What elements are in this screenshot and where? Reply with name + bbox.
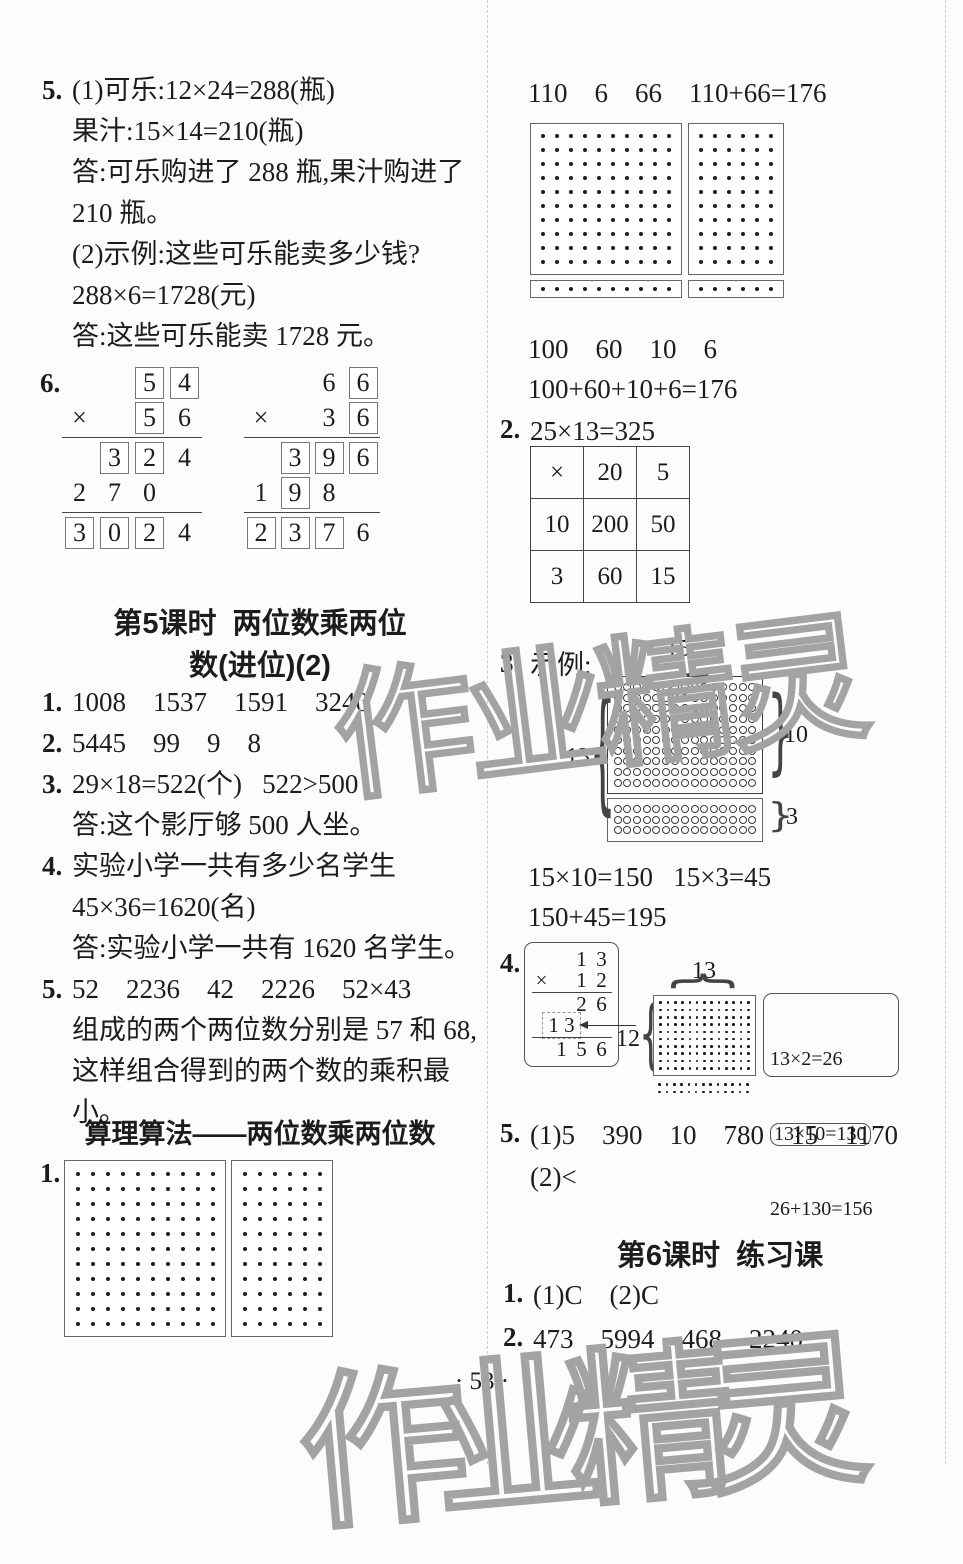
dot bbox=[740, 1038, 743, 1041]
dot bbox=[667, 1067, 670, 1070]
digit: 8 bbox=[323, 478, 336, 508]
dot bbox=[699, 260, 703, 264]
digit: 2 bbox=[596, 968, 607, 993]
circle-counter bbox=[681, 747, 689, 755]
line-text: 45×36=1620(名) bbox=[72, 892, 255, 922]
circle-counter bbox=[691, 826, 699, 834]
dot bbox=[703, 1038, 706, 1041]
text-line: 45×36=1620(名) bbox=[42, 887, 484, 928]
dot bbox=[659, 1031, 662, 1034]
dot bbox=[181, 1262, 185, 1266]
circle-counter bbox=[700, 736, 708, 744]
dot bbox=[769, 134, 773, 138]
dot bbox=[727, 176, 731, 180]
problem-number: 2. bbox=[500, 414, 520, 445]
circle-counter bbox=[719, 826, 727, 834]
text-line: 答:这些可乐能卖 1728 元。 bbox=[42, 316, 484, 357]
dot bbox=[583, 232, 587, 236]
dot bbox=[710, 1038, 713, 1041]
dot bbox=[273, 1232, 277, 1236]
dot bbox=[639, 232, 643, 236]
dot bbox=[695, 1083, 698, 1086]
circle-counter bbox=[633, 779, 641, 787]
digit: 6 bbox=[596, 992, 607, 1017]
dot bbox=[740, 1045, 743, 1048]
rule-line bbox=[62, 437, 202, 438]
dot bbox=[732, 1023, 735, 1026]
dot bbox=[243, 1202, 247, 1206]
circle-counter bbox=[633, 683, 641, 691]
circle-counter bbox=[652, 747, 660, 755]
dot bbox=[681, 1052, 684, 1055]
circle-counter bbox=[710, 726, 718, 734]
dot bbox=[625, 232, 629, 236]
dot-grid-10x10 bbox=[530, 123, 682, 275]
problem-number: 3. bbox=[42, 764, 62, 805]
circle-counter bbox=[710, 704, 718, 712]
digit-cell: 9 bbox=[278, 475, 312, 510]
dot bbox=[611, 148, 615, 152]
digit-cell: × bbox=[62, 400, 97, 435]
count-label-12: 12 bbox=[616, 1026, 640, 1053]
dot bbox=[288, 1322, 292, 1326]
dot bbox=[713, 204, 717, 208]
circle-counter bbox=[739, 704, 747, 712]
circle-counter bbox=[691, 805, 699, 813]
text-line: 210 瓶。 bbox=[42, 193, 484, 234]
digit: 0 bbox=[143, 478, 156, 508]
dot bbox=[718, 1060, 721, 1063]
line-text: 答:实验小学一共有 1620 名学生。 bbox=[72, 933, 471, 963]
circle-counter bbox=[652, 736, 660, 744]
circle-counter bbox=[623, 704, 631, 712]
dot bbox=[211, 1307, 215, 1311]
digit-cell: 2 bbox=[132, 440, 167, 475]
circle-counter bbox=[710, 826, 718, 834]
dot bbox=[273, 1247, 277, 1251]
digit-cell: 1 bbox=[572, 970, 592, 991]
dot bbox=[681, 1031, 684, 1034]
dot bbox=[713, 260, 717, 264]
dot bbox=[769, 148, 773, 152]
dot bbox=[569, 260, 573, 264]
boxed-digit: 2 bbox=[247, 517, 276, 549]
circle-counter bbox=[633, 768, 641, 776]
dot bbox=[769, 246, 773, 250]
dot bbox=[258, 1187, 262, 1191]
dot bbox=[699, 204, 703, 208]
dot-grid-6x10 bbox=[688, 123, 784, 275]
circle-counter bbox=[652, 715, 660, 723]
dot bbox=[689, 1038, 692, 1041]
dot bbox=[696, 1023, 699, 1026]
circle-counter bbox=[739, 736, 747, 744]
dot bbox=[196, 1232, 200, 1236]
dot bbox=[741, 218, 745, 222]
dot bbox=[303, 1307, 307, 1311]
dot bbox=[583, 134, 587, 138]
circle-counter bbox=[681, 715, 689, 723]
dot bbox=[718, 1023, 721, 1026]
problem-number: 1. bbox=[503, 1278, 523, 1309]
circle-counter bbox=[662, 736, 670, 744]
problem-number: 4. bbox=[42, 846, 62, 887]
dot bbox=[569, 148, 573, 152]
dot bbox=[673, 1083, 676, 1086]
dot bbox=[166, 1172, 170, 1176]
circle-counter bbox=[652, 805, 660, 813]
table-cell: 15 bbox=[637, 551, 690, 603]
dot bbox=[258, 1232, 262, 1236]
circle-counter bbox=[643, 816, 651, 824]
circle-counter bbox=[652, 726, 660, 734]
dot bbox=[710, 1060, 713, 1063]
circle-counter bbox=[710, 779, 718, 787]
text-line: 果汁:15×14=210(瓶) bbox=[42, 111, 484, 152]
dot bbox=[243, 1277, 247, 1281]
circle-counter bbox=[719, 694, 727, 702]
workbook-answer-page: { "page": { "number_label": "· 53 ·", "p… bbox=[0, 0, 963, 1464]
dot bbox=[625, 246, 629, 250]
circle-counter bbox=[662, 704, 670, 712]
dot bbox=[689, 1016, 692, 1019]
circle-grid-15x10 bbox=[607, 676, 763, 794]
dot bbox=[696, 1016, 699, 1019]
dot bbox=[740, 1001, 743, 1004]
dot bbox=[181, 1202, 185, 1206]
dot bbox=[740, 1067, 743, 1070]
dot bbox=[106, 1172, 110, 1176]
boxed-digit: 2 bbox=[135, 442, 164, 474]
digit-cell: 1 3 bbox=[552, 1015, 572, 1036]
circle-counter bbox=[691, 683, 699, 691]
answer-line: (1)C (2)C bbox=[533, 1278, 659, 1312]
dot bbox=[667, 134, 671, 138]
dot bbox=[709, 1091, 712, 1094]
dot bbox=[667, 1045, 670, 1048]
problem-number: 4. bbox=[500, 948, 520, 979]
dot bbox=[258, 1217, 262, 1221]
dot bbox=[258, 1307, 262, 1311]
dot bbox=[667, 1052, 670, 1055]
dot bbox=[211, 1262, 215, 1266]
dot bbox=[583, 287, 587, 291]
boxed-digit: 3 bbox=[281, 442, 310, 474]
dot bbox=[121, 1277, 125, 1281]
digit-cell: 6 bbox=[346, 515, 380, 550]
rule-line bbox=[62, 512, 202, 513]
problem-number: 5. bbox=[42, 70, 62, 111]
line-text: 288×6=1728(元) bbox=[72, 280, 255, 310]
dot bbox=[674, 1009, 677, 1012]
circle-counter bbox=[739, 826, 747, 834]
dot bbox=[747, 1060, 750, 1063]
digit-cell: × bbox=[532, 970, 552, 991]
dot bbox=[718, 1045, 721, 1048]
circle-counter bbox=[652, 704, 660, 712]
digit-cell: 8 bbox=[312, 475, 346, 510]
dot bbox=[727, 148, 731, 152]
boxed-digit: 6 bbox=[349, 402, 378, 434]
dot bbox=[713, 162, 717, 166]
circle-counter bbox=[729, 726, 737, 734]
dot bbox=[674, 1001, 677, 1004]
circle-counter bbox=[633, 726, 641, 734]
text-line: 4.实验小学一共有多少名学生 bbox=[42, 846, 484, 887]
circle-counter bbox=[729, 757, 737, 765]
dot bbox=[106, 1322, 110, 1326]
dot bbox=[713, 218, 717, 222]
dot bbox=[639, 246, 643, 250]
dot bbox=[747, 1023, 750, 1026]
line-text: 答:这个影厅够 500 人坐。 bbox=[72, 810, 377, 840]
circle-counter bbox=[662, 757, 670, 765]
dot bbox=[725, 1052, 728, 1055]
dot bbox=[106, 1262, 110, 1266]
digit-cell: 6 bbox=[592, 1039, 612, 1060]
dot bbox=[243, 1232, 247, 1236]
dot bbox=[196, 1322, 200, 1326]
digit-cell: 4 bbox=[167, 515, 202, 550]
circle-counter bbox=[671, 694, 679, 702]
dot bbox=[303, 1172, 307, 1176]
dot bbox=[713, 246, 717, 250]
circle-counter bbox=[643, 715, 651, 723]
line-text: 1008 1537 1591 3240 bbox=[72, 687, 369, 717]
dot bbox=[740, 1052, 743, 1055]
table-cell: 10 bbox=[531, 499, 584, 551]
grid-table: ×205102005036015 bbox=[530, 446, 690, 603]
dot bbox=[303, 1277, 307, 1281]
dot bbox=[318, 1202, 322, 1206]
dot bbox=[303, 1322, 307, 1326]
circle-counter bbox=[729, 816, 737, 824]
answer-line: 473 5994 468 2240 bbox=[533, 1322, 803, 1356]
dot bbox=[740, 1060, 743, 1063]
dot bbox=[211, 1172, 215, 1176]
dot bbox=[625, 204, 629, 208]
table-cell: 60 bbox=[584, 551, 637, 603]
dot bbox=[196, 1187, 200, 1191]
dot bbox=[288, 1187, 292, 1191]
circle-counter bbox=[681, 805, 689, 813]
dot bbox=[731, 1083, 734, 1086]
dot bbox=[625, 218, 629, 222]
dot bbox=[689, 1052, 692, 1055]
dot bbox=[106, 1247, 110, 1251]
dot bbox=[181, 1172, 185, 1176]
circle-counter bbox=[652, 816, 660, 824]
dot bbox=[659, 1009, 662, 1012]
dot bbox=[288, 1292, 292, 1296]
dot bbox=[151, 1307, 155, 1311]
circle-counter bbox=[652, 768, 660, 776]
problem-number: 2. bbox=[503, 1322, 523, 1353]
vertical-multiplication-54x56: 54×563242703024 bbox=[62, 365, 202, 550]
dot bbox=[597, 134, 601, 138]
dot bbox=[703, 1001, 706, 1004]
dot bbox=[718, 1016, 721, 1019]
dot bbox=[106, 1187, 110, 1191]
circle-counter bbox=[700, 816, 708, 824]
circle-counter bbox=[729, 826, 737, 834]
watermark-bottom: 作业精灵 bbox=[288, 1275, 843, 1564]
dot bbox=[710, 1067, 713, 1070]
boxed-digit: 4 bbox=[170, 367, 199, 399]
circle-counter bbox=[691, 704, 699, 712]
dot bbox=[732, 1016, 735, 1019]
section-title-lesson5-line1: 第5课时 两位数乘两位 bbox=[42, 600, 478, 642]
dot bbox=[318, 1232, 322, 1236]
dot bbox=[769, 162, 773, 166]
dot bbox=[288, 1247, 292, 1251]
dot bbox=[625, 148, 629, 152]
dot bbox=[583, 176, 587, 180]
circle-counter bbox=[729, 768, 737, 776]
dot bbox=[769, 218, 773, 222]
circle-counter bbox=[671, 704, 679, 712]
problem-number: 3. bbox=[500, 648, 520, 679]
digit-cell bbox=[532, 949, 552, 970]
dot bbox=[273, 1217, 277, 1221]
dot bbox=[717, 1083, 720, 1086]
circle-counter bbox=[633, 805, 641, 813]
dot bbox=[258, 1247, 262, 1251]
circle-counter bbox=[719, 779, 727, 787]
dot bbox=[680, 1091, 683, 1094]
dot bbox=[755, 287, 759, 291]
circle-counter bbox=[748, 704, 756, 712]
digit-cell: 3 bbox=[278, 515, 312, 550]
circle-counter bbox=[691, 736, 699, 744]
dot bbox=[769, 287, 773, 291]
circle-grid-15x3 bbox=[607, 798, 763, 842]
circle-counter bbox=[671, 826, 679, 834]
circle-counter bbox=[739, 715, 747, 723]
dot bbox=[555, 232, 559, 236]
circle-counter bbox=[681, 704, 689, 712]
problem-number: 5. bbox=[500, 1118, 520, 1149]
dot bbox=[659, 1045, 662, 1048]
dot bbox=[273, 1262, 277, 1266]
answer-line: 示例: bbox=[530, 648, 592, 682]
dot bbox=[181, 1217, 185, 1221]
digit: 4 bbox=[178, 443, 191, 473]
dot bbox=[555, 162, 559, 166]
circle-counter bbox=[719, 683, 727, 691]
circle-counter bbox=[671, 779, 679, 787]
dot bbox=[166, 1322, 170, 1326]
circle-counter bbox=[700, 757, 708, 765]
dot bbox=[732, 1067, 735, 1070]
dot bbox=[611, 190, 615, 194]
dot bbox=[273, 1292, 277, 1296]
dot bbox=[196, 1172, 200, 1176]
dot bbox=[151, 1232, 155, 1236]
circle-counter bbox=[739, 805, 747, 813]
dot bbox=[710, 1001, 713, 1004]
dot bbox=[211, 1292, 215, 1296]
dot bbox=[569, 246, 573, 250]
dot bbox=[689, 1009, 692, 1012]
problem-number: 1. bbox=[40, 1158, 60, 1189]
dot bbox=[681, 1023, 684, 1026]
dot bbox=[732, 1038, 735, 1041]
dot bbox=[681, 1045, 684, 1048]
dot bbox=[555, 176, 559, 180]
circle-counter bbox=[700, 683, 708, 691]
circle-counter bbox=[710, 736, 718, 744]
brace-top bbox=[672, 969, 740, 993]
dot bbox=[258, 1292, 262, 1296]
dot bbox=[727, 260, 731, 264]
dot bbox=[769, 260, 773, 264]
boxed-digit: 5 bbox=[135, 402, 164, 434]
dot bbox=[710, 1052, 713, 1055]
dot bbox=[243, 1247, 247, 1251]
dot bbox=[166, 1307, 170, 1311]
dot bbox=[725, 1016, 728, 1019]
dot bbox=[639, 134, 643, 138]
dot bbox=[611, 246, 615, 250]
circle-counter bbox=[700, 704, 708, 712]
boxed-digit: 3 bbox=[100, 442, 129, 474]
dot bbox=[288, 1307, 292, 1311]
margin-dashed-line bbox=[945, 0, 946, 1464]
digit-cell: 5 bbox=[132, 400, 167, 435]
dot bbox=[555, 246, 559, 250]
circle-counter bbox=[643, 747, 651, 755]
dot bbox=[196, 1277, 200, 1281]
circle-counter bbox=[748, 726, 756, 734]
vertical-multiplication-13x12: 13×12261 3156 bbox=[532, 949, 612, 1060]
dot bbox=[76, 1277, 80, 1281]
circle-counter bbox=[633, 747, 641, 755]
section-title-lesson6: 第6课时 练习课 bbox=[500, 1232, 940, 1274]
circle-counter bbox=[623, 747, 631, 755]
dot bbox=[181, 1307, 185, 1311]
dot bbox=[696, 1052, 699, 1055]
dot bbox=[611, 218, 615, 222]
dot bbox=[755, 218, 759, 222]
circle-counter bbox=[623, 779, 631, 787]
dot bbox=[611, 134, 615, 138]
dot bbox=[583, 148, 587, 152]
digit-cell: 3 bbox=[278, 440, 312, 475]
dot bbox=[211, 1187, 215, 1191]
dot bbox=[151, 1292, 155, 1296]
dot bbox=[196, 1202, 200, 1206]
dot bbox=[583, 260, 587, 264]
dot bbox=[681, 1009, 684, 1012]
dot bbox=[541, 218, 545, 222]
dot bbox=[273, 1277, 277, 1281]
dot bbox=[555, 218, 559, 222]
dot bbox=[166, 1277, 170, 1281]
circle-counter bbox=[662, 694, 670, 702]
circle-counter bbox=[691, 816, 699, 824]
dot bbox=[659, 1016, 662, 1019]
line-text: 组成的两个两位数分别是 57 和 68, bbox=[72, 1015, 477, 1045]
circle-counter bbox=[652, 683, 660, 691]
area-model-table: ×205102005036015 bbox=[530, 446, 690, 603]
circle-counter bbox=[748, 694, 756, 702]
circle-counter bbox=[681, 826, 689, 834]
dot bbox=[667, 1031, 670, 1034]
dot bbox=[713, 134, 717, 138]
circle-counter bbox=[643, 683, 651, 691]
count-label-10: 10 bbox=[784, 722, 808, 749]
